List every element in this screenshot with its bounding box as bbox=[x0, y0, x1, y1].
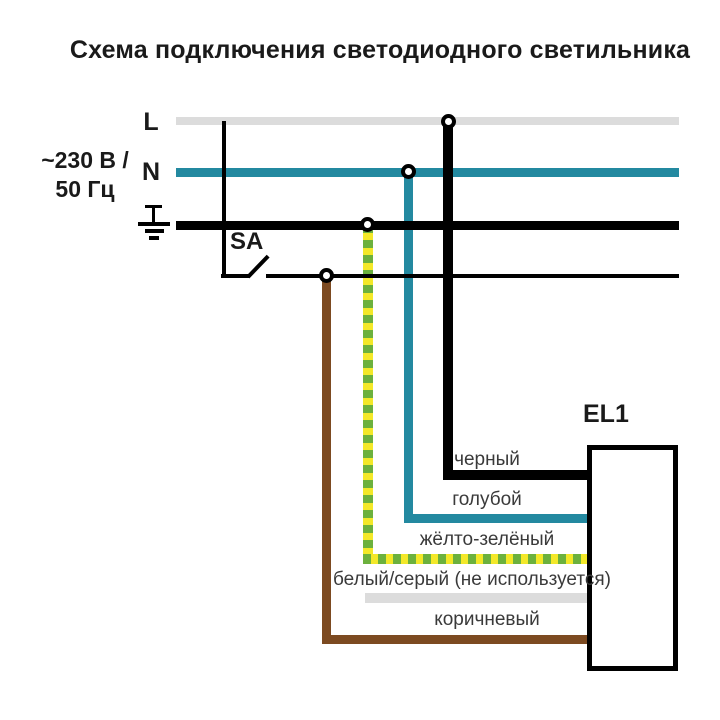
wire-label-brown: коричневый bbox=[387, 609, 587, 631]
wire-label-white-gray: белый/серый (не используется) bbox=[322, 569, 622, 591]
luminaire-box bbox=[587, 445, 678, 671]
junction-dot-neutral bbox=[401, 164, 416, 179]
luminaire-label: EL1 bbox=[583, 400, 629, 429]
phase-bus-line bbox=[176, 117, 679, 125]
wire-label-yellow-green: жёлто-зелёный bbox=[387, 529, 587, 551]
voltage-rating: ~230 В / 50 Гц bbox=[20, 146, 150, 204]
wire-brown-horizontal bbox=[322, 635, 588, 644]
junction-dot-phase bbox=[441, 114, 456, 129]
wire-label-black: черный bbox=[387, 449, 587, 471]
phase-tap-wire bbox=[222, 121, 226, 278]
voltage-rating-line2: 50 Гц bbox=[20, 175, 150, 204]
neutral-bus-line bbox=[176, 168, 679, 177]
wire-black-horizontal bbox=[443, 470, 588, 480]
wire-label-blue: голубой bbox=[387, 489, 587, 511]
ground-bar-short bbox=[149, 236, 159, 240]
wire-blue-horizontal bbox=[404, 514, 588, 523]
wire-black-vertical bbox=[443, 121, 453, 480]
ground-bar-middle bbox=[145, 229, 164, 233]
wire-white-gray-unused bbox=[365, 593, 588, 603]
neutral-label: N bbox=[141, 158, 161, 187]
phase-label: L bbox=[141, 108, 161, 137]
switch-label: SA bbox=[230, 228, 263, 256]
ground-bar-long bbox=[138, 222, 170, 226]
wiring-diagram-canvas: Схема подключения светодиодного светильн… bbox=[0, 0, 720, 720]
switch-input-stub bbox=[221, 274, 249, 278]
junction-dot-switch bbox=[319, 268, 334, 283]
wire-yellow-green-horizontal bbox=[363, 554, 588, 564]
junction-dot-ground bbox=[360, 217, 375, 232]
diagram-title: Схема подключения светодиодного светильн… bbox=[40, 36, 720, 65]
voltage-rating-line1: ~230 В / bbox=[20, 146, 150, 175]
